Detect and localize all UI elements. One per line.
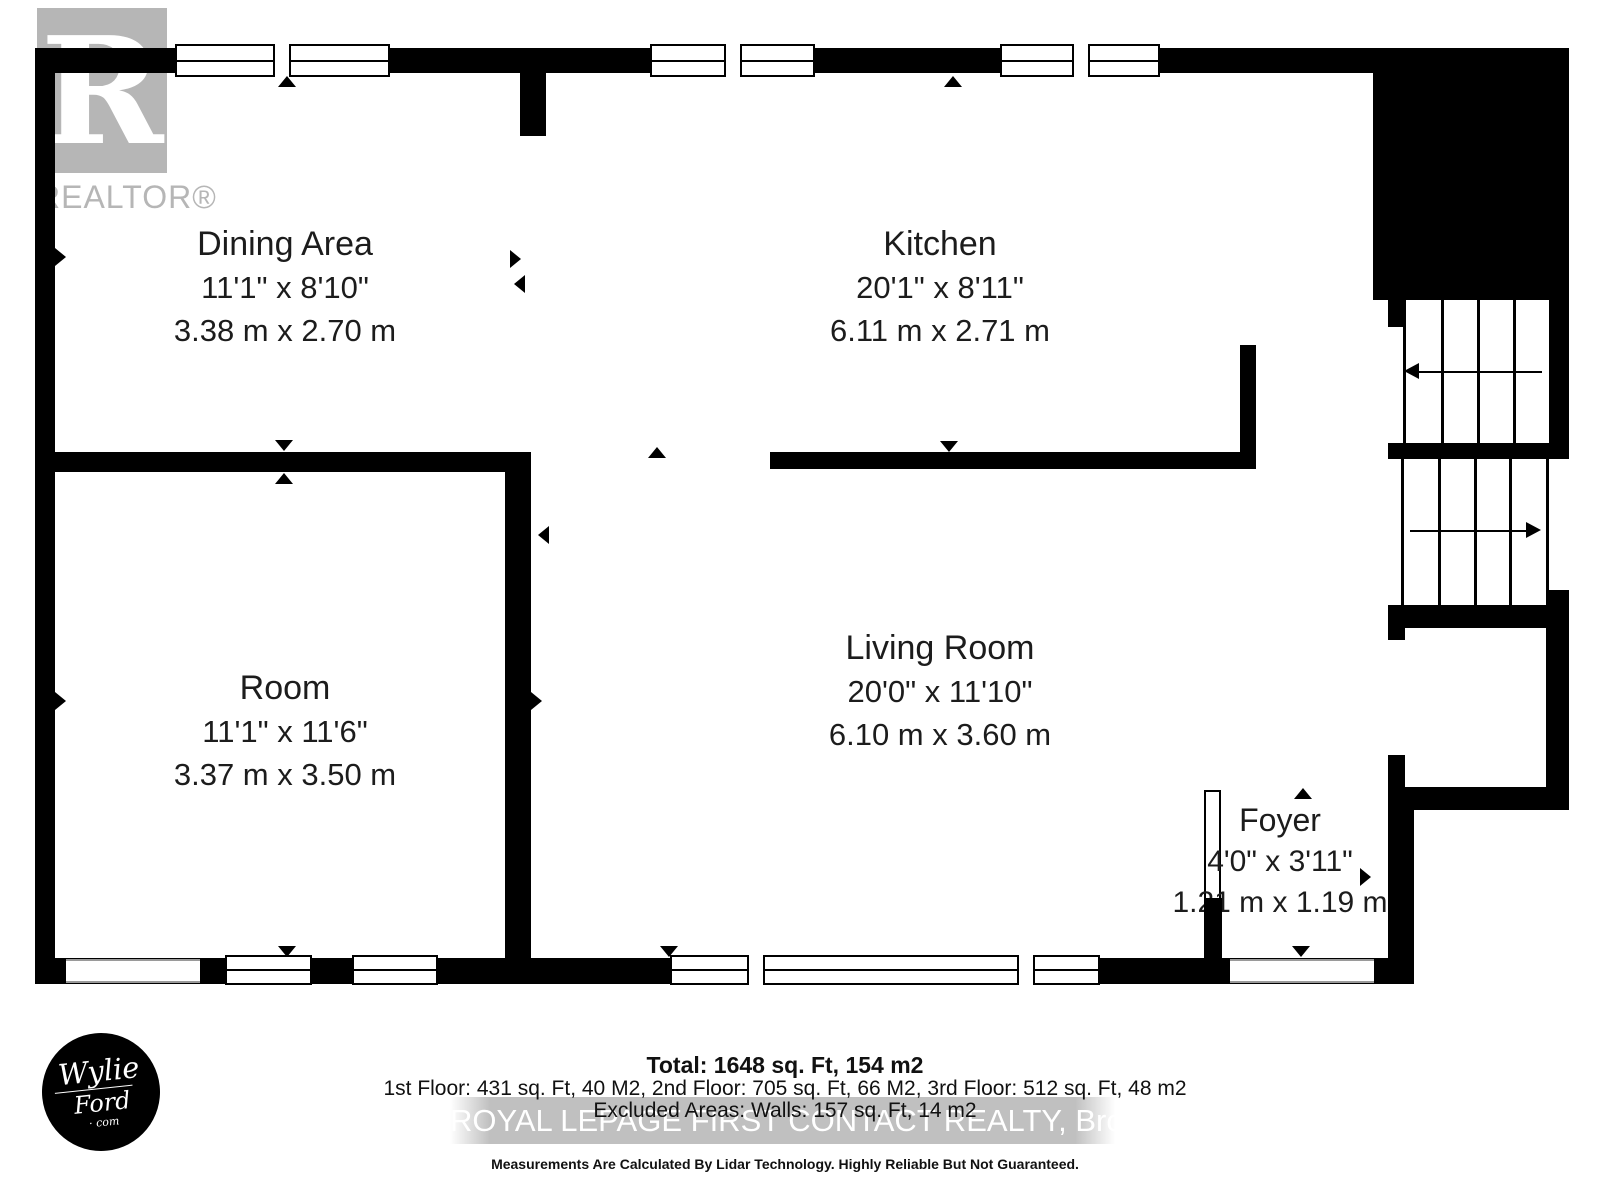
staircase-lower — [1401, 459, 1549, 605]
marker-down-living-window — [660, 946, 678, 957]
footer-floors: 1st Floor: 431 sq. Ft, 40 M2, 2nd Floor:… — [85, 1077, 1485, 1101]
staircase-upper — [1403, 300, 1549, 443]
marker-right-dining-kitchen — [510, 250, 521, 268]
marker-up-dining-window — [278, 76, 296, 87]
room-dim-imperial: 11'1" x 11'6" — [85, 710, 485, 753]
realtor-logo-icon: R — [37, 8, 167, 173]
room-dim-imperial: 20'0" x 11'10" — [740, 670, 1140, 713]
room-dim-imperial: 20'1" x 8'11" — [740, 266, 1140, 309]
footer-total: Total: 1648 sq. Ft, 154 m2 — [85, 1052, 1485, 1079]
room-dim-metric: 6.11 m x 2.71 m — [740, 309, 1140, 352]
marker-right-stair-block — [1376, 278, 1387, 296]
room-name: Dining Area — [85, 222, 485, 266]
realtor-logo-letter: R — [41, 17, 164, 165]
room-name: Room — [85, 666, 485, 710]
room-dim-imperial: 11'1" x 8'10" — [85, 266, 485, 309]
entry-door-opening — [1230, 959, 1374, 983]
realtor-logo-text: REALTOR® — [37, 179, 217, 216]
marker-right-room-left-wall — [55, 692, 66, 710]
realtor-logo: R REALTOR® — [37, 8, 217, 216]
wall-dining-kitchen-stub — [520, 48, 546, 136]
marker-right-dining-left-wall — [55, 248, 66, 266]
room-dim-metric: 3.38 m x 2.70 m — [85, 309, 485, 352]
marker-right-foyer — [1360, 868, 1371, 886]
wall-closet-top — [1388, 605, 1569, 628]
wall-closet-left-upper — [1388, 605, 1405, 640]
wall-room-right — [505, 452, 531, 984]
footer-excluded-areas: Excluded Areas: Walls: 157 sq. Ft, 14 m2 — [85, 1099, 1485, 1123]
wall-stair-landing — [1388, 443, 1569, 459]
room-label-kitchen: Kitchen 20'1" x 8'11" 6.11 m x 2.71 m — [740, 222, 1140, 352]
window-bottom-room-1 — [225, 955, 312, 985]
marker-up-living-opening — [648, 447, 666, 458]
wall-right-upper — [1546, 300, 1569, 443]
floor-plan: R REALTOR® — [0, 0, 1600, 1200]
marker-right-room-right-wall — [531, 692, 542, 710]
wall-top-right-block — [1373, 48, 1569, 300]
marker-left-dining-kitchen — [514, 275, 525, 293]
marker-up-foyer — [1294, 788, 1312, 799]
window-top-dining — [175, 44, 390, 77]
stair-direction-arrow-left — [1404, 363, 1419, 379]
wall-stair-jamb — [1388, 300, 1403, 327]
marker-up-room-door — [275, 473, 293, 484]
window-bottom-living — [670, 955, 1100, 985]
marker-down-kitchen-living-wall — [940, 441, 958, 452]
wylie-logo-line2: Ford — [73, 1087, 132, 1119]
room-label-dining-area: Dining Area 11'1" x 8'10" 3.38 m x 2.70 … — [85, 222, 485, 352]
window-bottom-room-2 — [352, 955, 438, 985]
wylie-logo-line3: · com — [88, 1114, 119, 1130]
room-label-room: Room 11'1" x 11'6" 3.37 m x 3.50 m — [85, 666, 485, 796]
wall-foyer-stub — [1204, 898, 1222, 958]
room-name: Living Room — [740, 626, 1140, 670]
patio-door-opening — [66, 959, 200, 983]
room-dim-metric: 6.10 m x 3.60 m — [740, 713, 1140, 756]
marker-down-room-window — [278, 946, 296, 957]
wall-kitchen-stub — [1240, 345, 1256, 452]
room-name: Kitchen — [740, 222, 1140, 266]
marker-left-room-wall — [538, 526, 549, 544]
wall-kitchen-living-divider — [770, 452, 1256, 469]
room-label-living-room: Living Room 20'0" x 11'10" 6.10 m x 3.60… — [740, 626, 1140, 756]
wall-foyer-right — [1388, 787, 1414, 984]
footer-disclaimer: Measurements Are Calculated By Lidar Tec… — [85, 1156, 1485, 1172]
window-top-kitchen-2 — [1000, 44, 1160, 77]
window-top-kitchen-1 — [650, 44, 815, 77]
stair-direction-arrow-right — [1526, 522, 1541, 538]
room-dim-metric: 3.37 m x 3.50 m — [85, 753, 485, 796]
wall-dining-room-divider — [35, 452, 531, 472]
wall-closet-bottom — [1388, 787, 1569, 810]
marker-down-room-door — [275, 440, 293, 451]
marker-up-kitchen-window — [944, 76, 962, 87]
wylie-ford-logo: Wylie Ford · com — [36, 1027, 166, 1157]
wall-left — [35, 48, 55, 984]
marker-down-entry-door — [1292, 946, 1310, 957]
